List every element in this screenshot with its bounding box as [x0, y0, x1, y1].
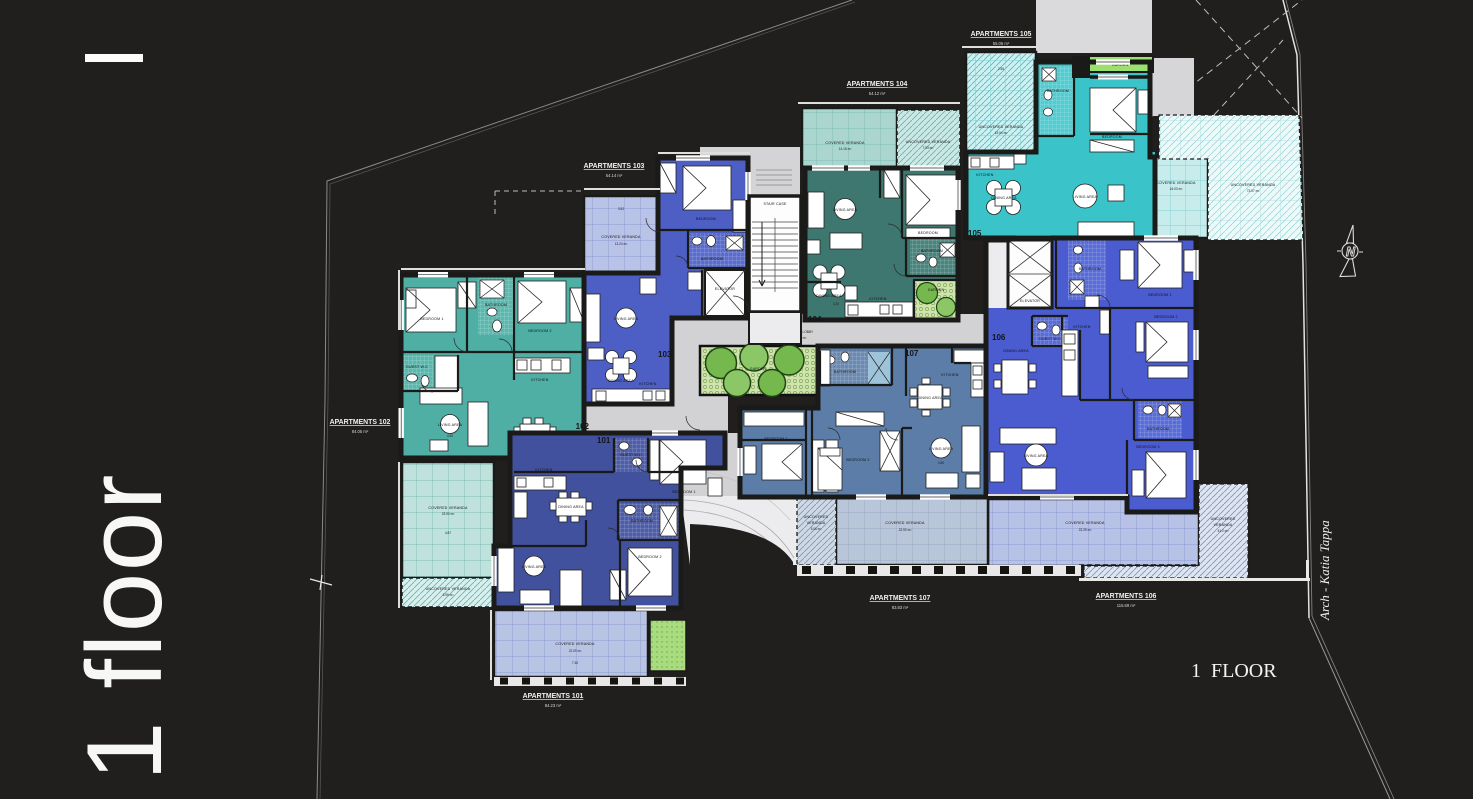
svg-text:BEDROOM: BEDROOM	[696, 217, 716, 221]
svg-text:BEDROOM 2: BEDROOM 2	[528, 329, 551, 333]
svg-text:22.29 m²: 22.29 m²	[1079, 528, 1092, 532]
svg-text:BATHROOM: BATHROOM	[485, 303, 507, 307]
svg-text:GARDEN: GARDEN	[928, 288, 945, 292]
svg-text:15.54 m²: 15.54 m²	[995, 131, 1008, 135]
svg-text:VERANDA: VERANDA	[807, 521, 826, 525]
svg-text:BATHROOM: BATHROOM	[1079, 267, 1101, 271]
svg-text:DINING AREA: DINING AREA	[558, 505, 584, 509]
svg-text:ELEVATOR: ELEVATOR	[1020, 299, 1040, 303]
svg-text:KITCHEN: KITCHEN	[531, 378, 548, 382]
svg-text:107: 107	[905, 349, 919, 358]
svg-text:COVERED VERANDA: COVERED VERANDA	[825, 141, 865, 145]
svg-text:BATHROOM: BATHROOM	[631, 519, 653, 523]
svg-text:STAIR CASE: STAIR CASE	[763, 202, 787, 206]
svg-text:BEDROOM 2: BEDROOM 2	[638, 555, 661, 559]
svg-text:115.69 m²: 115.69 m²	[1117, 603, 1136, 608]
svg-text:105: 105	[968, 229, 982, 238]
svg-text:23.90 m²: 23.90 m²	[442, 512, 455, 516]
svg-text:LIVING AREA: LIVING AREA	[522, 565, 547, 569]
svg-text:KITCHEN: KITCHEN	[941, 373, 958, 377]
svg-text:APARTMENTS 104: APARTMENTS 104	[847, 81, 908, 88]
svg-text:7.93 m²: 7.93 m²	[923, 146, 934, 150]
svg-text:LIVING AREA: LIVING AREA	[833, 208, 858, 212]
svg-text:APARTMENTS 107: APARTMENTS 107	[870, 595, 931, 602]
svg-text:LIVING AREA: LIVING AREA	[438, 423, 463, 427]
svg-text:UNCOVERED VERANDA: UNCOVERED VERANDA	[979, 125, 1024, 129]
svg-text:LIVING AREA: LIVING AREA	[614, 317, 639, 321]
svg-text:7.30: 7.30	[572, 661, 578, 665]
svg-text:BATHROOM: BATHROOM	[834, 370, 856, 374]
svg-text:BATHROOM: BATHROOM	[701, 257, 723, 261]
svg-text:DINING AREA: DINING AREA	[991, 196, 1017, 200]
svg-text:COVERED VERANDA: COVERED VERANDA	[428, 506, 468, 510]
svg-text:BEDROOM 2: BEDROOM 2	[846, 458, 869, 462]
svg-text:GUEST W.C: GUEST W.C	[1039, 337, 1061, 341]
svg-text:BEDROOM 1: BEDROOM 1	[1148, 293, 1171, 297]
svg-text:KITCHEN: KITCHEN	[1073, 325, 1090, 329]
svg-text:BATHROOM: BATHROOM	[1147, 427, 1169, 431]
svg-text:BEDROOM 3: BEDROOM 3	[1136, 445, 1159, 449]
svg-text:Arch - Katia Tappa: Arch - Katia Tappa	[1317, 520, 1332, 621]
svg-text:GUEST W.C: GUEST W.C	[620, 453, 642, 457]
svg-text:KITCHEN: KITCHEN	[639, 382, 656, 386]
svg-text:APARTMENTS 103: APARTMENTS 103	[584, 163, 645, 170]
svg-text:2.55: 2.55	[998, 67, 1004, 71]
svg-text:54.14 m²: 54.14 m²	[606, 173, 623, 178]
svg-text:LIVING AREA: LIVING AREA	[1073, 195, 1098, 199]
svg-text:22.90 m²: 22.90 m²	[899, 528, 912, 532]
svg-text:UNCOVERED: UNCOVERED	[804, 515, 829, 519]
svg-text:5.59 m²: 5.59 m²	[443, 593, 454, 597]
svg-text:106: 106	[992, 333, 1006, 342]
svg-text:APARTMENTS 105: APARTMENTS 105	[971, 31, 1032, 38]
svg-text:COVERED VERANDA: COVERED VERANDA	[1156, 181, 1196, 185]
svg-text:ELEVATOR: ELEVATOR	[715, 287, 735, 291]
svg-text:BEDROOM 1: BEDROOM 1	[420, 317, 443, 321]
svg-text:VERANDA: VERANDA	[1214, 523, 1233, 527]
svg-text:13.24 m²: 13.24 m²	[615, 242, 628, 246]
svg-text:102: 102	[576, 422, 590, 431]
svg-text:UNCOVERED VERANDA: UNCOVERED VERANDA	[426, 587, 471, 591]
svg-text:GARDEN: GARDEN	[750, 367, 767, 371]
svg-text:83.83 m²: 83.83 m²	[892, 605, 909, 610]
svg-text:COVERED VERANDA: COVERED VERANDA	[601, 235, 641, 239]
svg-text:4.80: 4.80	[938, 461, 944, 465]
svg-text:BEDROOM 2: BEDROOM 2	[1154, 315, 1177, 319]
svg-text:KITCHEN: KITCHEN	[976, 173, 993, 177]
svg-text:UNCOVERED VERANDA: UNCOVERED VERANDA	[1231, 183, 1276, 187]
svg-text:DINING AREA: DINING AREA	[608, 379, 634, 383]
svg-text:KITCHEN: KITCHEN	[869, 297, 886, 301]
svg-text:3.30: 3.30	[833, 302, 839, 306]
svg-text:1 FLOOR: 1 FLOOR	[1191, 660, 1277, 682]
svg-text:BATHROOM: BATHROOM	[1047, 89, 1069, 93]
svg-text:16.03 m²: 16.03 m²	[1170, 187, 1183, 191]
svg-text:GUEST W.C: GUEST W.C	[406, 365, 428, 369]
svg-text:APARTMENTS 106: APARTMENTS 106	[1096, 593, 1157, 600]
svg-text:COVERED VERANDA: COVERED VERANDA	[555, 642, 595, 646]
svg-text:COVERED VERANDA: COVERED VERANDA	[1065, 521, 1105, 525]
svg-text:54.12 m²: 54.12 m²	[869, 91, 886, 96]
svg-text:LIVING AREA: LIVING AREA	[929, 447, 954, 451]
svg-text:BATHROOM: BATHROOM	[921, 249, 943, 253]
svg-text:DINING AREA: DINING AREA	[917, 396, 943, 400]
svg-text:5.06 m²: 5.06 m²	[811, 527, 822, 531]
svg-text:22.09 m²: 22.09 m²	[569, 649, 582, 653]
svg-text:LIVING AREA: LIVING AREA	[1024, 454, 1049, 458]
svg-text:103: 103	[658, 350, 672, 359]
svg-text:84.05 m²: 84.05 m²	[352, 429, 369, 434]
svg-text:14.15 m²: 14.15 m²	[839, 147, 852, 151]
svg-text:1 floor: 1 floor	[64, 473, 184, 781]
svg-text:BEDROOM: BEDROOM	[1102, 135, 1122, 139]
svg-text:UNCOVERED: UNCOVERED	[1211, 517, 1236, 521]
svg-text:84.23 m²: 84.23 m²	[545, 703, 562, 708]
svg-text:73.07 m²: 73.07 m²	[1247, 189, 1260, 193]
svg-text:APARTMENTS 101: APARTMENTS 101	[523, 693, 584, 700]
svg-text:APARTMENTS 102: APARTMENTS 102	[330, 419, 391, 426]
svg-text:41.2 m²: 41.2 m²	[1218, 529, 1229, 533]
svg-text:DINING AREA: DINING AREA	[816, 294, 842, 298]
svg-text:BEDROOM: BEDROOM	[918, 231, 938, 235]
svg-text:101: 101	[597, 436, 611, 445]
svg-text:UNCOVERED VERANDA: UNCOVERED VERANDA	[906, 140, 951, 144]
svg-text:4.50: 4.50	[447, 434, 453, 438]
svg-text:N: N	[1346, 245, 1356, 259]
svg-text:55.06 m²: 55.06 m²	[993, 41, 1010, 46]
svg-text:104: 104	[808, 315, 822, 324]
svg-text:COVERED VERANDA: COVERED VERANDA	[885, 521, 925, 525]
svg-text:3.52: 3.52	[618, 207, 624, 211]
svg-text:DINING AREA: DINING AREA	[1003, 349, 1029, 353]
svg-text:BEDROOM 1: BEDROOM 1	[672, 490, 695, 494]
svg-text:4.87: 4.87	[445, 531, 451, 535]
